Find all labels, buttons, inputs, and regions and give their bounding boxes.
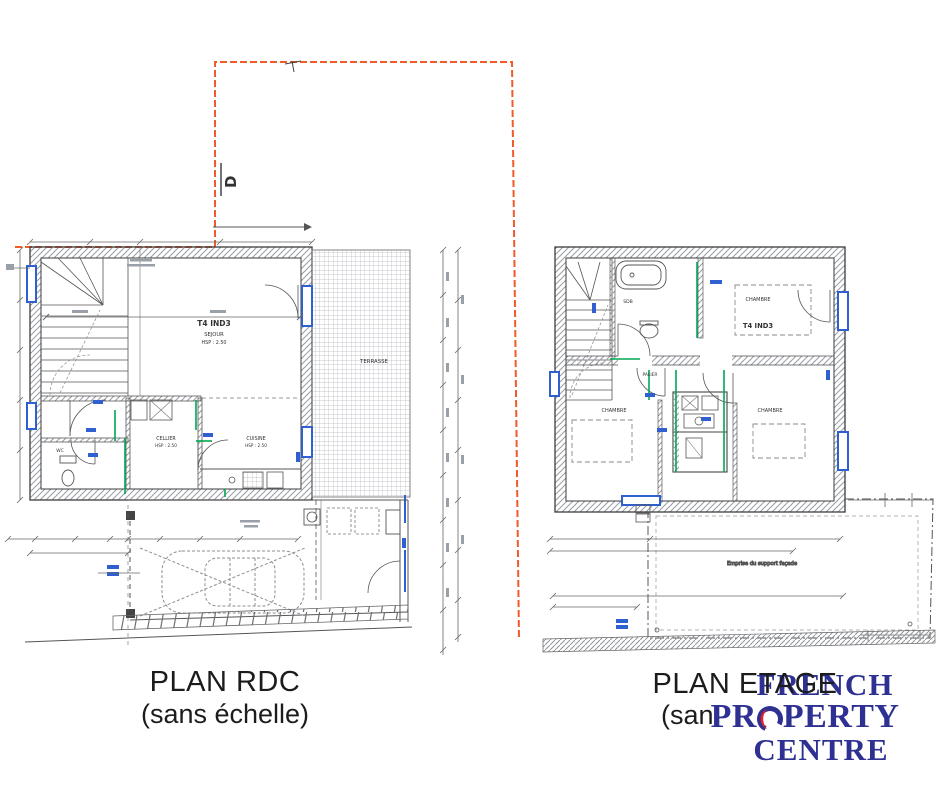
garage: [25, 500, 412, 642]
annex-outline: Emprise du support façade: [543, 493, 935, 652]
etage-sdb-label: SDB: [623, 299, 633, 305]
logo-line-property: PR PERTY: [711, 700, 900, 734]
logo-line-centre: CENTRE: [753, 734, 888, 767]
rdc-terrasse-label: TERRASSE: [359, 359, 389, 365]
etage-chambre2-label: CHAMBRE: [601, 408, 626, 414]
rdc-hsp-label: HSP : 2.50: [202, 340, 227, 346]
logo-o-roundel-icon: [756, 704, 784, 734]
section-label-d: D: [222, 176, 240, 188]
etage-chambre3-label: CHAMBRE: [757, 408, 782, 414]
caption-plan-etage-title: PLAN ETAGE: [630, 668, 860, 701]
car-glyph: [140, 548, 305, 616]
etage-unit-label: T4 IND3: [743, 322, 774, 330]
rdc-cellier-label: CELLIER: [156, 436, 176, 442]
annex-note: Emprise du support façade: [727, 561, 797, 567]
floor-plan-sheet: D: [0, 0, 940, 788]
etage-palier-label: PALIER: [643, 372, 658, 378]
plan-etage-title: PLAN ETAGE: [630, 668, 860, 701]
plan-rdc-title: PLAN RDC: [100, 666, 350, 699]
rdc-unit-label: T4 IND3: [197, 319, 230, 328]
rdc-cuisine-hsp: HSP : 2.50: [245, 443, 267, 448]
plan-etage: CHAMBRE T4 IND3 SDB PALIER CHAMBRE CHAMB…: [550, 247, 848, 629]
etage-chambre1-label: CHAMBRE: [745, 297, 770, 303]
caption-plan-rdc: PLAN RDC (sans échelle): [100, 666, 350, 730]
rdc-wc-label: WC: [56, 448, 63, 454]
plan-rdc-subtitle: (sans échelle): [100, 699, 350, 730]
rdc-sejour-label: SEJOUR: [204, 332, 224, 338]
logo-property-left: PR: [711, 700, 757, 734]
plan-rdc: T4 IND3 SEJOUR HSP : 2.50 CELLIER HSP : …: [25, 247, 412, 642]
rdc-cuisine-label: CUISINE: [246, 436, 265, 442]
logo-property-right: PERTY: [783, 700, 900, 734]
rdc-cellier-hsp: HSP : 2.50: [155, 443, 177, 448]
